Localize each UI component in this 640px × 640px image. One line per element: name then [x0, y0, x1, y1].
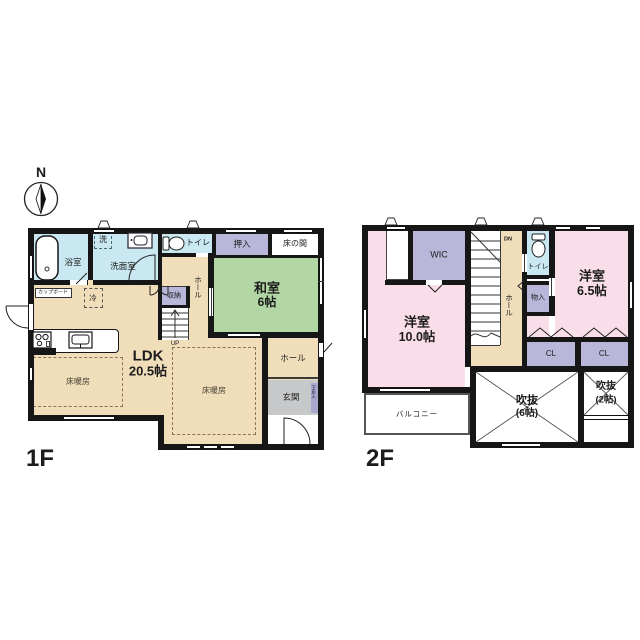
floor-plan-canvas: N 浴室 洗 洗面室 トイレ 押入 床の間 和室 6帖 ホール 収納 カップボー… — [0, 0, 640, 640]
f1-vent-bottom-1 — [187, 445, 200, 449]
f1-window-top-wash — [94, 229, 114, 233]
f2-hall-label: ホール — [505, 294, 513, 317]
f1-ldk-label: LDK — [133, 349, 164, 364]
f1-wall-hall-left — [158, 234, 162, 340]
f1-entrance-label: 玄関 — [282, 393, 299, 402]
f1-washitsu-label: 和室 — [254, 282, 280, 295]
f1-toilet-label: トイレ — [186, 239, 210, 247]
f1-washitsu-size-label: 6帖 — [258, 296, 277, 308]
f1-wall-top — [28, 228, 324, 234]
f1-window-top-tokonoma — [284, 229, 312, 233]
f1-wall-oshiire-tokonoma — [268, 234, 272, 255]
f1-window-top-oshiire — [226, 229, 256, 233]
f2-wall-toilet-bottom — [527, 275, 549, 279]
f2-wall-hall-right — [522, 231, 527, 367]
f2-void-large-size-label: (6帖) — [516, 409, 538, 419]
f1-vent-bottom-3 — [221, 445, 234, 449]
f2-wic-label: WIC — [430, 251, 448, 260]
f2-door-gap-wic — [426, 280, 442, 285]
f1-floor-heating-label-2: 床暖房 — [202, 387, 226, 395]
f2-wall-left — [362, 225, 368, 393]
f2-door-line-toilet — [524, 254, 525, 272]
f2-wall-bottom — [470, 442, 634, 448]
f1-porch-area — [268, 415, 318, 444]
f1-wall-entry-left — [262, 332, 268, 450]
f2-void-small-size-label: (2帖) — [595, 395, 616, 405]
f1-wall-bath-wash — [88, 234, 93, 280]
f2-vent-icons — [385, 218, 544, 225]
f1-door-gap-hall-right — [319, 343, 323, 357]
f1-door-gap-toilet — [196, 253, 208, 257]
f1-sliding-door-line — [211, 288, 212, 316]
f2-bedroom-small-label: 洋室 — [579, 270, 605, 283]
f2-bedroom-small-size-label: 6.5帖 — [577, 285, 607, 298]
f2-void-large-label: 吹抜 — [516, 396, 538, 407]
f2-door-gap-bedroom-small — [549, 278, 555, 296]
f1-bath-label: 浴室 — [64, 258, 81, 267]
f1-floor-label: 1F — [26, 447, 54, 471]
f2-wall-bedroom-small-left — [549, 231, 555, 316]
f2-closet-right-label: CL — [599, 350, 609, 358]
f2-void-small-label: 吹抜 — [596, 382, 616, 392]
f2-wall-closet-divider — [575, 342, 581, 366]
f2-floor-label: 2F — [366, 447, 394, 471]
f1-wash-room-label: 洗面室 — [110, 262, 136, 271]
f2-wall-void-left — [470, 366, 476, 448]
f1-floor-heating-label-1: 床暖房 — [66, 378, 90, 386]
f2-window-bedroom-large-bottom — [380, 388, 430, 392]
f1-vent-icons — [98, 221, 199, 228]
f2-window-left — [363, 310, 367, 338]
f2-window-top-bedroom-small-2 — [586, 226, 600, 230]
f1-storage-label: 収納 — [167, 293, 181, 300]
f2-window-void-large-bottom — [502, 443, 540, 447]
f1-hall-right-label: ホール — [280, 354, 306, 363]
f1-entry-step-line — [268, 377, 318, 379]
f1-oshiire-label: 押入 — [233, 240, 250, 249]
f1-ldk-size-label: 20.5帖 — [129, 365, 167, 378]
f2-stairs-area — [471, 231, 500, 345]
compass-north-label: N — [36, 165, 46, 179]
f1-cupboard-label: カップボード — [38, 291, 68, 296]
f1-wall-storage-bottom — [158, 305, 190, 308]
f2-wall-stairs-left — [465, 231, 471, 367]
f1-door-gap-left — [29, 304, 33, 330]
f2-dn-label: DN — [504, 237, 512, 243]
f1-storage-top-line — [162, 286, 186, 287]
f1-wall-wash-bottom — [93, 280, 162, 285]
f1-fridge-label: 冷 — [89, 294, 97, 302]
f2-door-line-bedroom-small — [551, 278, 552, 296]
f2-wall-closet-divider-v — [408, 231, 413, 280]
f2-window-top-bedroom-small-1 — [556, 226, 570, 230]
f2-toilet-label: トイレ — [528, 264, 549, 271]
f1-shoe-box-label: 下足入 — [311, 385, 316, 399]
f1-stairs-area — [162, 308, 188, 340]
f1-window-left-small — [29, 368, 33, 380]
f1-tokonoma-label: 床の間 — [283, 240, 307, 248]
f1-wall-washitsu-top — [212, 255, 324, 258]
f1-wall-kitchen-stub — [28, 348, 56, 355]
f1-window-washitsu-bottom — [228, 333, 260, 337]
f1-hall-upper-label: ホール — [194, 276, 202, 299]
f1-stairs-right-line — [188, 308, 189, 340]
f2-stairs-bottom-line — [471, 345, 500, 346]
f1-laundry-label: 洗 — [99, 236, 107, 244]
f2-bedroom-small-ext — [527, 316, 549, 337]
f1-vent-bottom-2 — [204, 445, 217, 449]
f2-wall-void-divider — [578, 366, 584, 448]
f2-void-large-area — [476, 372, 578, 442]
f1-wall-bottom — [158, 444, 324, 450]
f2-window-top-closet — [387, 226, 405, 230]
f1-up-label: UP — [171, 341, 179, 347]
f2-stairs-right-line — [500, 231, 501, 345]
f2-window-right — [629, 282, 633, 308]
f1-window-left-bath — [29, 256, 33, 278]
f2-bedroom-large-label: 洋室 — [404, 316, 430, 329]
f1-door-gap-bath — [70, 280, 87, 285]
f2-closet-left-label: CL — [546, 350, 556, 358]
f2-storage-label: 物入 — [531, 295, 545, 302]
f1-window-bottom-left — [64, 416, 114, 420]
f2-wall-void-top — [470, 366, 634, 372]
f2-balcony-label: バルコニー — [396, 410, 438, 418]
f2-window-void-small — [584, 415, 628, 420]
compass-icon — [25, 183, 58, 216]
f2-bedroom-large-closet — [386, 231, 408, 280]
f1-window-right-tick — [318, 281, 324, 282]
f2-bedroom-large-size-label: 10.0帖 — [399, 331, 436, 344]
